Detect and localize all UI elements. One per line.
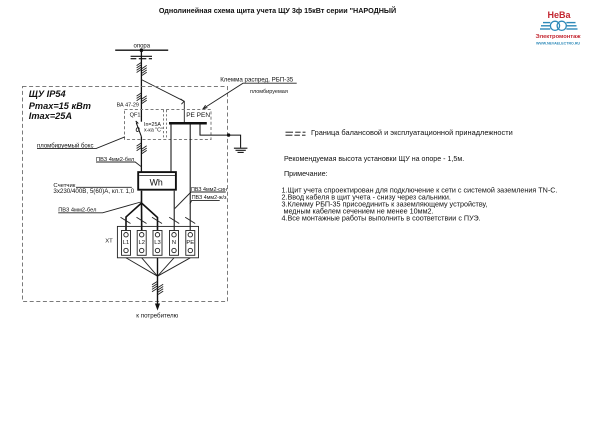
svg-text:пломбируемая: пломбируемая xyxy=(250,89,288,95)
svg-text:к потребителю: к потребителю xyxy=(136,312,178,319)
svg-text:L2: L2 xyxy=(138,240,144,246)
svg-text:QF1: QF1 xyxy=(130,113,141,119)
svg-text:N: N xyxy=(172,240,176,246)
svg-text:L3: L3 xyxy=(154,240,160,246)
svg-text:Wh: Wh xyxy=(150,178,163,188)
svg-text:PE: PE xyxy=(186,240,194,246)
svg-text:4.Все монтажные работы выполни: 4.Все монтажные работы выполнить в соотв… xyxy=(282,214,481,223)
svg-text:Однолинейная схема щита учета: Однолинейная схема щита учета ЩУ 3ф 15кВ… xyxy=(159,6,396,15)
svg-text:WWW.NEVAELECTRO.RU: WWW.NEVAELECTRO.RU xyxy=(536,42,580,46)
svg-text:Примечание:: Примечание: xyxy=(284,169,328,178)
svg-text:НеВа: НеВа xyxy=(547,10,571,20)
svg-text:3х230/400В, 5(60)А, кл.т. 1,0: 3х230/400В, 5(60)А, кл.т. 1,0 xyxy=(53,188,134,195)
svg-text:х-ка "С": х-ка "С" xyxy=(144,128,163,134)
svg-text:Pmax=15 кВт: Pmax=15 кВт xyxy=(29,101,91,111)
svg-text:ЩУ IP54: ЩУ IP54 xyxy=(29,89,66,99)
svg-text:Электромонтаж: Электромонтаж xyxy=(536,34,582,40)
svg-text:Клемма распред. РБП-35: Клемма распред. РБП-35 xyxy=(220,76,294,83)
svg-text:Граница балансовой и эксплуата: Граница балансовой и эксплуатационной пр… xyxy=(311,128,513,137)
svg-text:XT: XT xyxy=(105,238,113,244)
svg-text:Imax=25А: Imax=25А xyxy=(29,111,72,121)
svg-text:ВА 47-29: ВА 47-29 xyxy=(117,102,139,108)
svg-text:Рекомендуемая высота установки: Рекомендуемая высота установки ЩУ на опо… xyxy=(284,155,464,163)
svg-text:L1: L1 xyxy=(123,240,129,246)
svg-text:PE PEN: PE PEN xyxy=(186,112,210,119)
